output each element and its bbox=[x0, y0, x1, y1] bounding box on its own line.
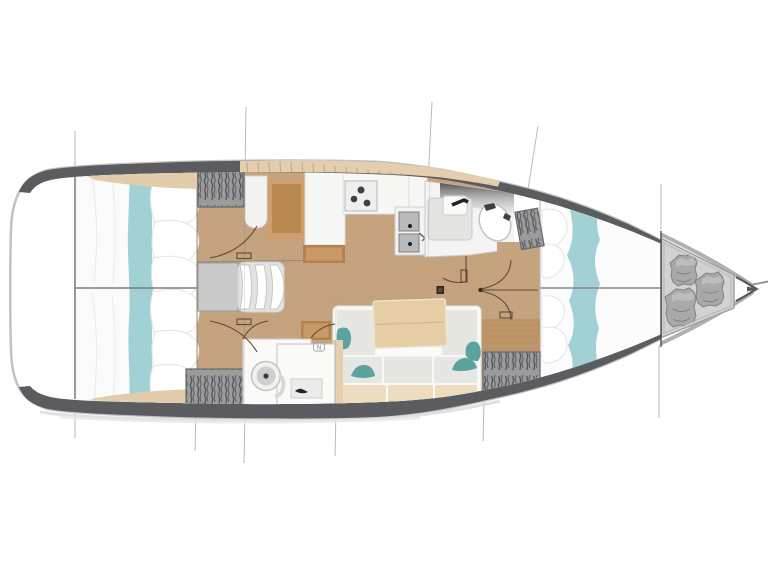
svg-text:N: N bbox=[317, 346, 321, 352]
